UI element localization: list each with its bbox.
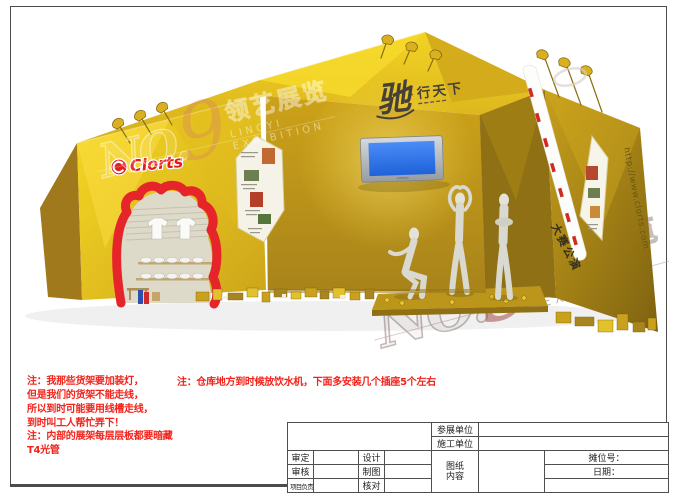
- draft-label: 制图: [359, 465, 385, 479]
- small-flag-red: [144, 292, 149, 304]
- note-line: 但是我们的货架不能走线，: [27, 389, 153, 403]
- panel-photo: [244, 170, 259, 181]
- review-value-cell: [314, 465, 359, 479]
- panel-photo: [590, 206, 600, 218]
- constructor-label: 施工单位: [432, 437, 479, 451]
- tv-screen: [368, 141, 435, 176]
- shoe-shelf: [138, 262, 220, 265]
- check-value-cell: [385, 479, 432, 493]
- note-hidden-tube: 注：内部的展架每层层板都要暗藏 T4光管: [27, 430, 173, 458]
- note-line: 注：内部的展架每层层板都要暗藏: [27, 430, 173, 444]
- drawing-sheet: NO. 9 领艺展览 LINGYI EXHIBITION: [0, 0, 680, 498]
- note-line: 所以到时可能要用线槽走线，: [27, 403, 153, 417]
- draft-value-cell: [385, 465, 432, 479]
- drawing-content-value-cell: [479, 451, 545, 493]
- left-outer-wall: [40, 143, 82, 300]
- panel-photo: [262, 148, 275, 164]
- note-line: 到时叫工人帮忙弄下！: [27, 417, 153, 431]
- panel-photo: [588, 188, 600, 198]
- tv-logo-bar: [397, 177, 409, 179]
- company-area-cell: [288, 423, 432, 451]
- drawing-content-label: 图纸内容: [432, 451, 479, 493]
- note-shelf-lighting: 注：我那些货架要加装灯， 但是我们的货架不能走线， 所以到时可能要用线槽走线， …: [27, 375, 153, 431]
- design-label: 设计: [359, 451, 385, 465]
- title-block: 参展单位 施工单位 审定 设计 图纸内容 摊位号： 审核 制图 日期： 项目负责: [287, 422, 669, 493]
- lead-value-cell: [314, 479, 359, 493]
- note-water-dispenser: 注：仓库地方到时候放饮水机，下面多安装几个插座5个左右: [177, 376, 436, 390]
- lead-label: 项目负责: [288, 479, 314, 493]
- design-value-cell: [385, 451, 432, 465]
- small-flag-blue: [138, 290, 143, 304]
- constructor-value-cell: [479, 437, 669, 451]
- exhibitor-value-cell: [479, 423, 669, 437]
- bottom-right-empty-cell: [545, 479, 669, 493]
- note-line: 注：我那些货架要加装灯，: [27, 375, 153, 389]
- spotlight-icon: [557, 56, 571, 69]
- spotlight-icon: [535, 48, 549, 61]
- approve-value-cell: [314, 451, 359, 465]
- wall-tv: [356, 135, 450, 193]
- review-label: 审核: [288, 465, 314, 479]
- panel-photo: [258, 214, 271, 224]
- approve-label: 审定: [288, 451, 314, 465]
- date-label: 日期：: [545, 465, 669, 479]
- check-label: 核对: [359, 479, 385, 493]
- panel-photo: [586, 166, 598, 180]
- faint-ring-mark: [553, 65, 588, 88]
- booth-no-label: 摊位号：: [545, 451, 669, 465]
- panel-photo: [250, 192, 263, 207]
- exhibitor-label: 参展单位: [432, 423, 479, 437]
- note-line: T4光管: [27, 444, 173, 458]
